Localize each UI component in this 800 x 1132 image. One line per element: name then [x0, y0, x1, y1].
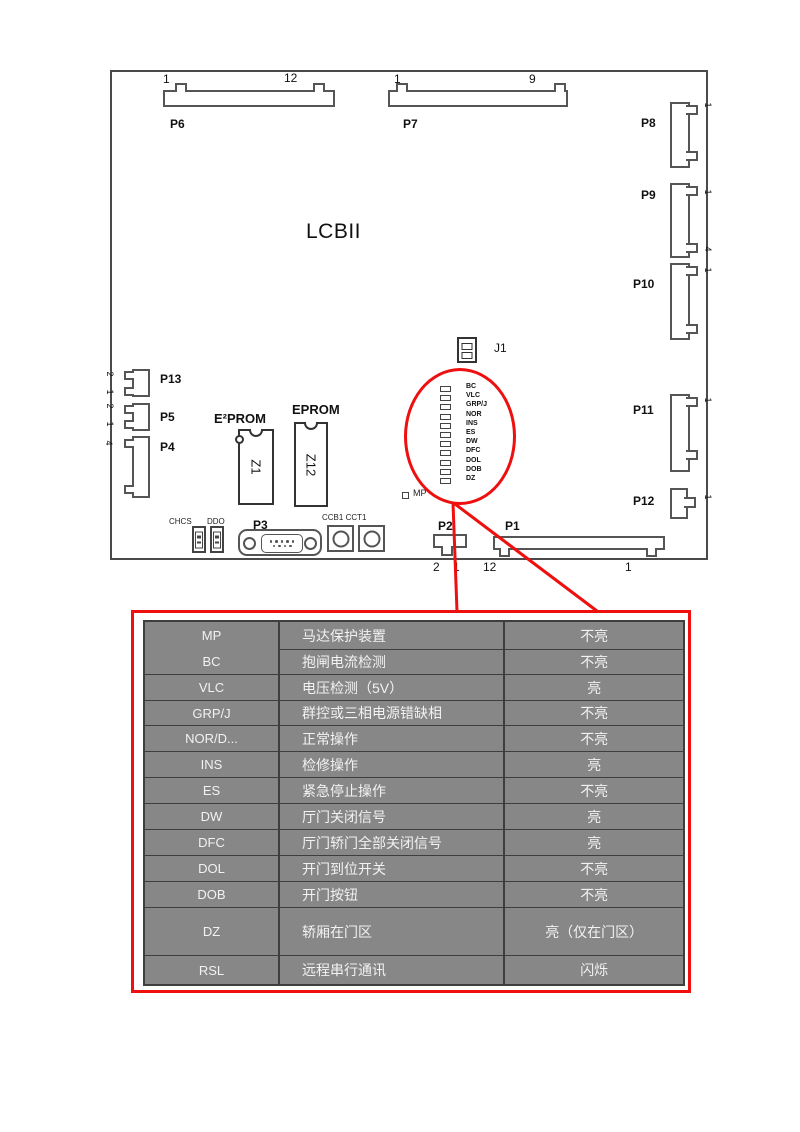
description-cell: 抱闸电流检测	[280, 649, 505, 674]
jumper-cell	[462, 352, 473, 359]
edge-pin-number: 1	[703, 491, 713, 503]
connector-p12-tab	[684, 497, 696, 508]
table-row: DZ轿厢在门区亮（仅在门区）	[145, 907, 683, 955]
dip-switch-ddo	[210, 526, 224, 553]
table-row: VLC电压检测（5V）亮	[145, 674, 683, 700]
description-cell: 正常操作	[280, 725, 505, 751]
description-cell: 紧急停止操作	[280, 777, 505, 803]
eprom-chip-z12: Z12	[294, 422, 328, 507]
connector-p8-tab	[686, 151, 698, 161]
status-cell: 亮	[505, 829, 683, 855]
table-row: DW厅门关闭信号亮	[145, 803, 683, 829]
jumper-j1	[457, 337, 477, 363]
db9-pins	[261, 534, 303, 553]
round-connectors-label: CCB1 CCT1	[322, 513, 366, 522]
pin-number: 2	[105, 368, 115, 380]
led-name-cell: RSL	[145, 955, 280, 984]
connector-p4-label: P4	[160, 440, 175, 454]
pin-number: 1	[625, 560, 632, 574]
connector-p9-tab	[686, 243, 698, 253]
board-title: LCBII	[306, 220, 361, 244]
callout-ellipse	[404, 368, 516, 505]
chip-pin1-mark	[235, 435, 244, 444]
led-name-cell: DOL	[145, 855, 280, 881]
status-cell: 不亮	[505, 622, 683, 649]
eeprom-label: E²PROM	[214, 411, 266, 426]
status-cell: 不亮	[505, 700, 683, 725]
status-cell: 不亮	[505, 649, 683, 674]
connector-p13-label: P13	[160, 372, 181, 386]
connector-p1-label: P1	[505, 519, 520, 533]
dip-switch-inner	[195, 531, 203, 548]
pin-number: 1	[453, 560, 460, 574]
status-cell: 闪烁	[505, 955, 683, 984]
status-cell: 不亮	[505, 777, 683, 803]
round-connector-ccb1	[327, 525, 354, 552]
circuit-board-outline	[110, 70, 708, 560]
connector-p13-tab	[124, 371, 134, 380]
table-row: GRP/J群控或三相电源错缺相不亮	[145, 700, 683, 725]
connector-p2-tab	[441, 546, 453, 556]
status-cell: 亮	[505, 674, 683, 700]
connector-p9-tab	[686, 186, 698, 196]
led-name-cell: DZ	[145, 907, 280, 955]
pin-number: 2	[433, 560, 440, 574]
edge-pin-number: 1	[703, 186, 713, 198]
chip-notch	[304, 422, 318, 430]
round-connector-circle	[332, 530, 349, 547]
connector-p6-tab	[313, 83, 325, 92]
connector-p7-label: P7	[403, 117, 418, 131]
led-name-cell: INS	[145, 751, 280, 777]
db9-screw	[243, 537, 256, 550]
status-cell: 不亮	[505, 855, 683, 881]
pin-number: 2	[105, 400, 115, 412]
connector-p10-tab	[686, 266, 698, 276]
edge-pin-number: 1	[703, 394, 713, 406]
connector-p3-db9	[238, 529, 322, 556]
pin-number: 12	[284, 71, 297, 85]
table-row: INS检修操作亮	[145, 751, 683, 777]
connector-p1	[493, 536, 665, 550]
description-cell: 厅门关闭信号	[280, 803, 505, 829]
connector-p6-tab	[175, 83, 187, 92]
led-name-cell: DOB	[145, 881, 280, 907]
mp-led	[402, 492, 409, 499]
description-cell: 开门按钮	[280, 881, 505, 907]
round-connector-circle	[363, 530, 380, 547]
dip-switch-inner	[213, 531, 221, 548]
page: { "board": { "title": "LCBII", "connecto…	[0, 0, 800, 1132]
eprom-label: EPROM	[292, 402, 340, 417]
led-name-cell: VLC	[145, 674, 280, 700]
led-name-cell: MP	[145, 622, 280, 649]
led-name-cell: DW	[145, 803, 280, 829]
connector-p4-tab	[124, 439, 134, 448]
jumper-cell	[462, 343, 473, 350]
connector-p13-tab	[124, 387, 134, 396]
edge-pin-number: 1	[703, 264, 713, 276]
eeprom-chip-z1: Z1	[238, 429, 274, 505]
connector-p13	[132, 369, 150, 397]
connector-p2-label: P2	[438, 519, 453, 533]
connector-p10-label: P10	[633, 277, 654, 291]
table-row: ES紧急停止操作不亮	[145, 777, 683, 803]
status-table: MP马达保护装置不亮BC抱闸电流检测不亮VLC电压检测（5V）亮GRP/J群控或…	[143, 620, 685, 986]
chip-ref: Z1	[249, 459, 264, 474]
connector-p7-tab	[554, 83, 566, 92]
edge-pin-number: 1	[703, 99, 713, 111]
table-row: DOB开门按钮不亮	[145, 881, 683, 907]
chip-notch	[249, 429, 263, 437]
table-row: NOR/D...正常操作不亮	[145, 725, 683, 751]
pin-number: 4	[104, 437, 114, 449]
connector-p1-tab	[646, 548, 657, 557]
switch-chcs-label: CHCS	[169, 517, 192, 526]
connector-p8-tab	[686, 105, 698, 115]
pin-number: 1	[105, 418, 115, 430]
status-cell: 不亮	[505, 881, 683, 907]
led-name-cell: NOR/D...	[145, 725, 280, 751]
led-name-cell: BC	[145, 649, 280, 674]
db9-screw	[304, 537, 317, 550]
connector-p5-tab	[124, 405, 134, 414]
connector-p5-tab	[124, 420, 134, 429]
led-name-cell: DFC	[145, 829, 280, 855]
connector-p11-tab	[686, 450, 698, 460]
connector-p6-label: P6	[170, 117, 185, 131]
edge-pin-number: 4	[703, 243, 713, 255]
chip-ref: Z12	[304, 453, 319, 475]
pin-number: 1	[163, 72, 170, 86]
connector-p4-tab	[124, 485, 134, 494]
dip-switch-chcs	[192, 526, 206, 553]
description-cell: 检修操作	[280, 751, 505, 777]
pin-number: 9	[529, 72, 536, 86]
connector-p12-label: P12	[633, 494, 654, 508]
connector-p10-tab	[686, 324, 698, 334]
round-connector-cct1	[358, 525, 385, 552]
connector-p11-tab	[686, 397, 698, 407]
table-row: RSL远程串行通讯闪烁	[145, 955, 683, 984]
description-cell: 电压检测（5V）	[280, 674, 505, 700]
jumper-j1-label: J1	[494, 341, 507, 355]
description-cell: 群控或三相电源错缺相	[280, 700, 505, 725]
description-cell: 开门到位开关	[280, 855, 505, 881]
pin-number: 12	[483, 560, 496, 574]
pin-number: 1	[394, 72, 401, 86]
connector-p1-tab	[499, 548, 510, 557]
connector-p4	[132, 436, 150, 498]
description-cell: 轿厢在门区	[280, 907, 505, 955]
table-row: BC抱闸电流检测不亮	[145, 649, 683, 674]
table-row: MP马达保护装置不亮	[145, 622, 683, 649]
table-row: DFC厅门轿门全部关闭信号亮	[145, 829, 683, 855]
led-name-cell: GRP/J	[145, 700, 280, 725]
description-cell: 远程串行通讯	[280, 955, 505, 984]
description-cell: 马达保护装置	[280, 622, 505, 649]
connector-p5-label: P5	[160, 410, 175, 424]
pin-number: 1	[105, 386, 115, 398]
status-cell: 亮	[505, 751, 683, 777]
connector-p6	[163, 90, 335, 107]
switch-ddo-label: DDO	[207, 517, 225, 526]
connector-p5	[132, 403, 150, 431]
status-cell: 亮（仅在门区）	[505, 907, 683, 955]
description-cell: 厅门轿门全部关闭信号	[280, 829, 505, 855]
table-row: DOL开门到位开关不亮	[145, 855, 683, 881]
led-name-cell: ES	[145, 777, 280, 803]
connector-p9-label: P9	[641, 188, 656, 202]
connector-p8-label: P8	[641, 116, 656, 130]
connector-p7	[388, 90, 568, 107]
connector-p11-label: P11	[633, 403, 654, 417]
status-cell: 不亮	[505, 725, 683, 751]
status-cell: 亮	[505, 803, 683, 829]
